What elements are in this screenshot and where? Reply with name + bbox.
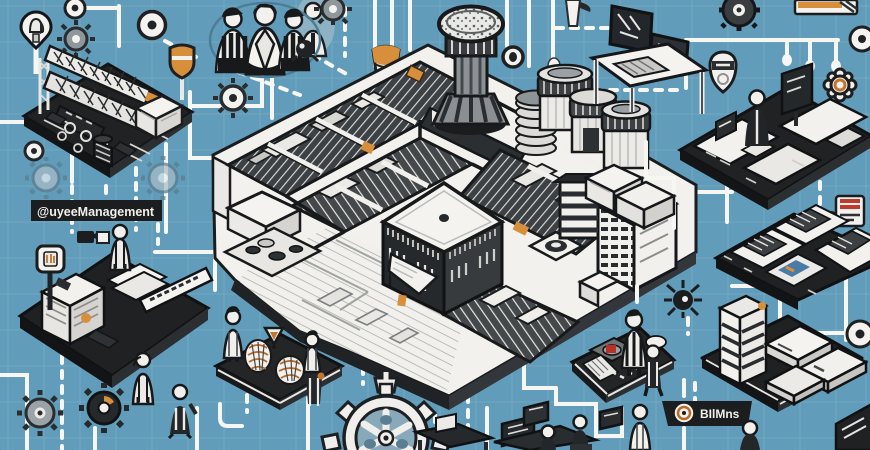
svg-text:BIlMns: BIlMns	[700, 407, 740, 421]
svg-text:@uyeeManagement: @uyeeManagement	[37, 205, 155, 219]
